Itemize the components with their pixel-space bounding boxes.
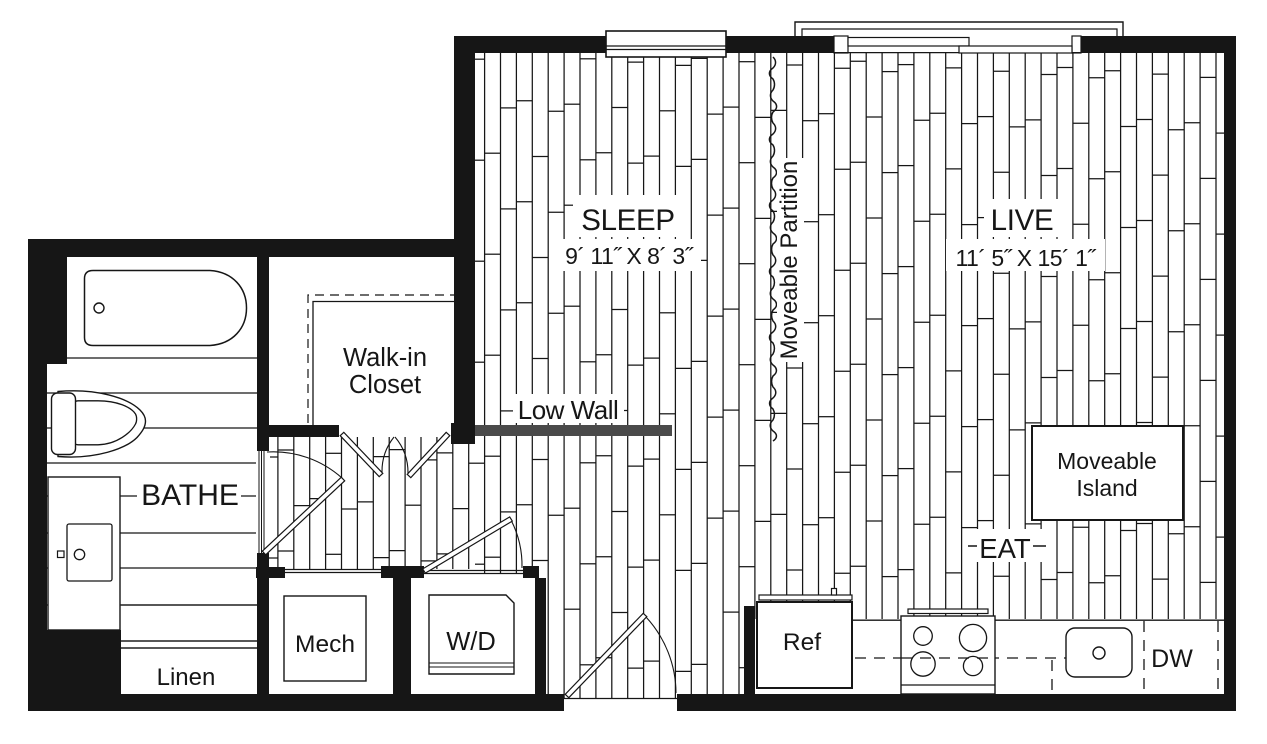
svg-text:Mech: Mech [295, 631, 355, 658]
svg-text:LIVE: LIVE [991, 204, 1054, 237]
svg-text:Island: Island [1076, 475, 1137, 501]
svg-text:Low Wall: Low Wall [518, 395, 619, 425]
svg-text:Ref: Ref [783, 629, 821, 656]
svg-text:Moveable: Moveable [1057, 448, 1157, 474]
svg-text:SLEEP: SLEEP [581, 204, 675, 237]
svg-text:W/D: W/D [446, 628, 496, 656]
svg-text:Closet: Closet [349, 371, 421, 399]
svg-text:EAT: EAT [979, 533, 1031, 564]
svg-text:9´ 11˝ X 8´ 3˝: 9´ 11˝ X 8´ 3˝ [565, 243, 694, 269]
svg-text:DW: DW [1151, 645, 1193, 673]
svg-text:Moveable Partition: Moveable Partition [776, 161, 803, 360]
svg-text:Linen: Linen [157, 664, 216, 691]
svg-text:Walk-in: Walk-in [343, 344, 427, 372]
svg-text:BATHE: BATHE [141, 479, 239, 512]
svg-text:11´ 5˝ X 15´ 1˝: 11´ 5˝ X 15´ 1˝ [955, 245, 1096, 271]
